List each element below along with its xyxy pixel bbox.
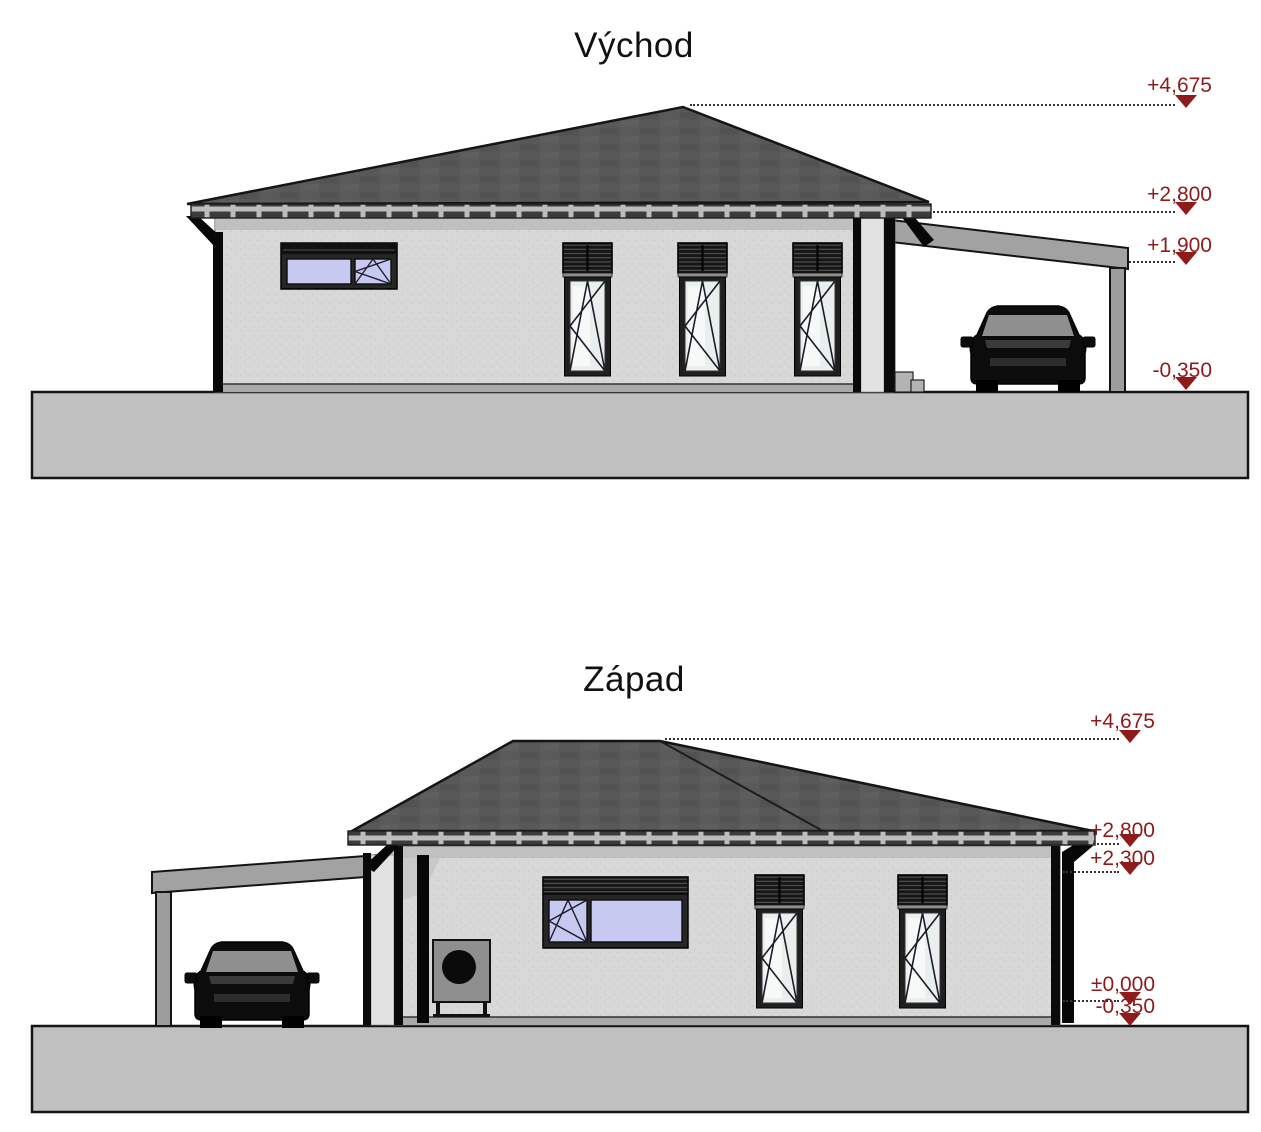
car-front-view [961,306,1095,392]
car-rear-view [185,942,319,1028]
elevation-marker-arrow-icon [1119,1013,1141,1026]
dimension-leader-line [933,211,1175,213]
ground-strip [32,392,1248,478]
window-small [281,243,397,289]
east-elevation-drawing [0,0,1261,560]
dimension-leader-line [1063,871,1119,873]
window-tall-1 [563,243,612,376]
ground-strip [32,1026,1248,1112]
elevation-marker-arrow-icon [1175,202,1197,215]
dimension-leader-line [690,104,1175,106]
hip-roof [187,107,931,218]
elevation-marker-arrow-icon [1175,377,1197,390]
eave-batten-strip [191,204,931,218]
elevation-sheet: Východ [0,0,1261,1132]
hip-roof [348,741,1095,845]
foundation-step [895,372,924,392]
eave-batten-strip [348,831,1095,845]
elevation-marker-arrow-icon [1119,730,1141,743]
elevation-marker-arrow-icon [1119,834,1141,847]
elevation-marker-arrow-icon [1175,252,1197,265]
elevation-marker-arrow-icon [1119,862,1141,875]
window-tall-2 [678,243,727,376]
window-wide [543,877,688,948]
dimension-leader-line [1093,843,1119,845]
elevation-marker-arrow-icon [1175,95,1197,108]
window-tall-2 [898,875,947,1008]
dimension-leader-line [1129,261,1175,263]
window-tall-1 [755,875,804,1008]
window-tall-3 [793,243,842,376]
dimension-leader-line [665,738,1119,740]
